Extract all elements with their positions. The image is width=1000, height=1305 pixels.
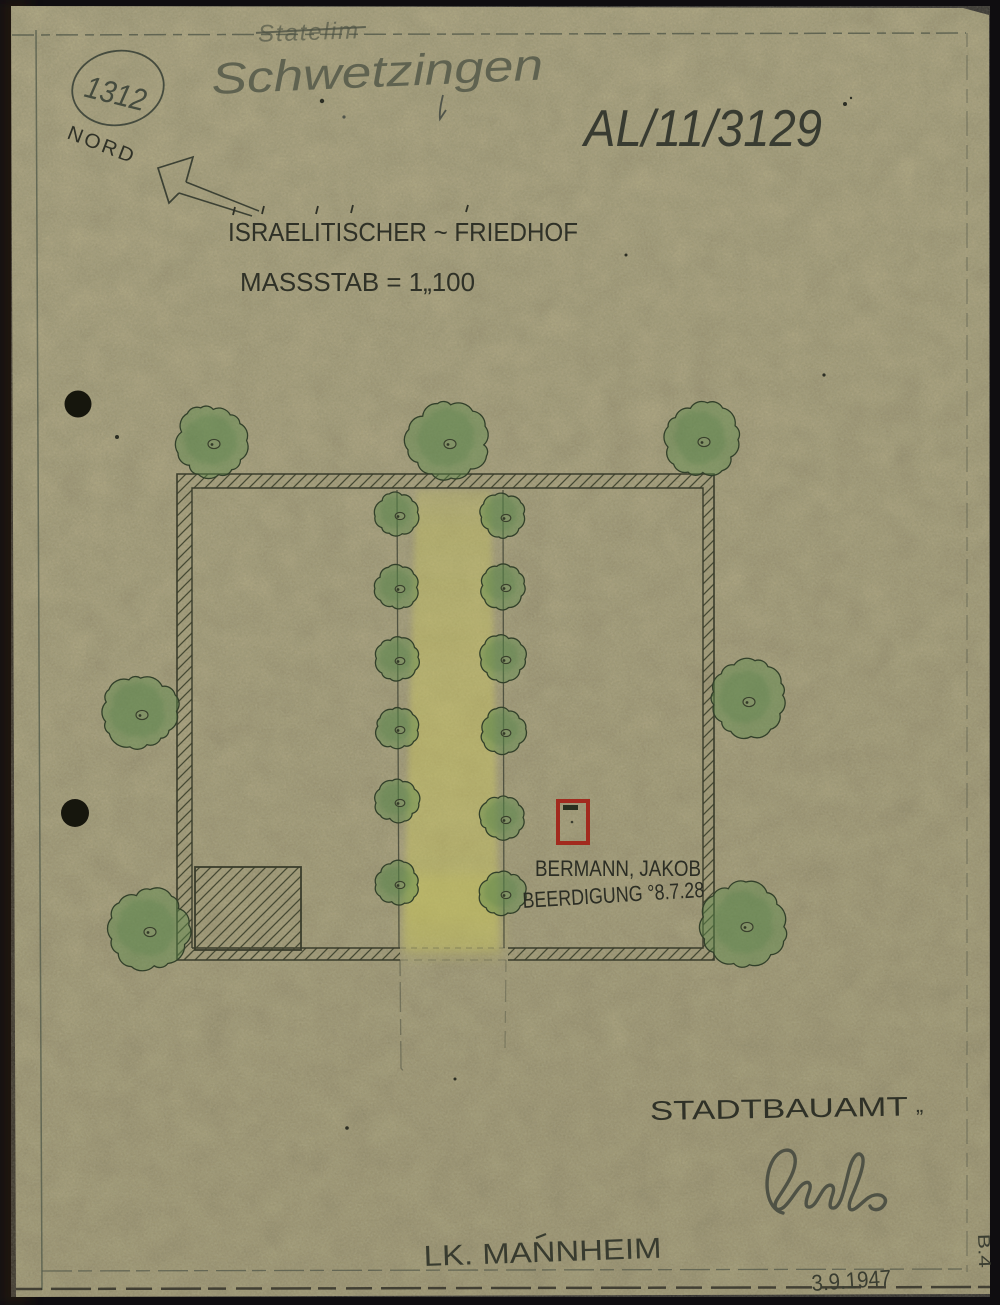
svg-text:3.9.1947: 3.9.1947: [811, 1264, 893, 1296]
svg-text:AL/11/3129: AL/11/3129: [581, 100, 822, 158]
svg-text:STADTBAUAMT: STADTBAUAMT: [650, 1092, 908, 1126]
svg-text:„: „: [916, 1092, 923, 1117]
svg-text:MASSSTAB = 1„100: MASSSTAB = 1„100: [240, 267, 475, 297]
svg-text:BERMANN, JAKOB: BERMANN, JAKOB: [535, 856, 701, 881]
svg-text:B.4: B.4: [974, 1233, 994, 1268]
svg-text:ISRAELITISCHER ~ FRIEDHOF: ISRAELITISCHER ~ FRIEDHOF: [228, 217, 578, 247]
